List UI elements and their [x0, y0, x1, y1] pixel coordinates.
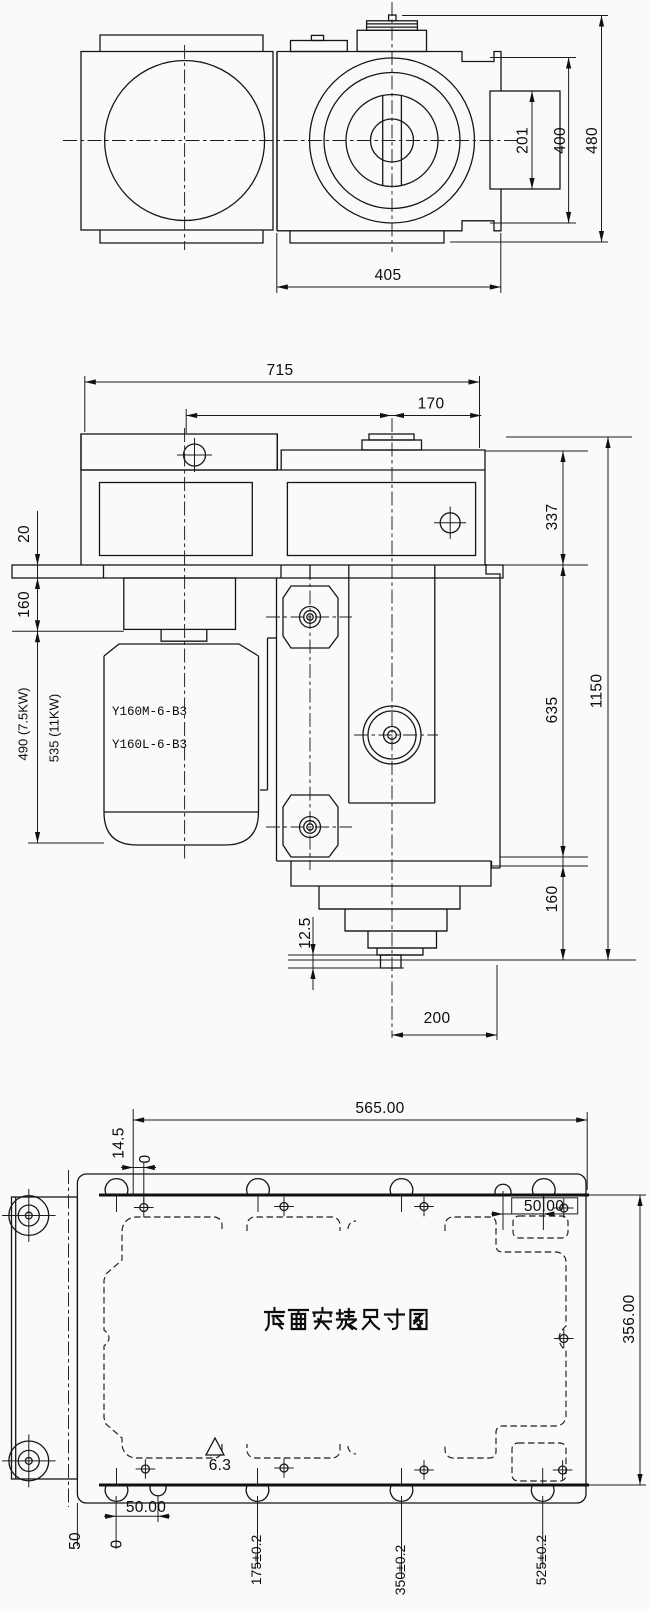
svg-text:0: 0	[109, 1539, 126, 1548]
svg-text:535 (11KW): 535 (11KW)	[47, 694, 62, 762]
svg-text:160: 160	[16, 591, 33, 618]
svg-text:14.5: 14.5	[111, 1127, 128, 1158]
svg-text:175±0.2: 175±0.2	[248, 1535, 264, 1586]
svg-text:400: 400	[552, 127, 569, 154]
svg-text:337: 337	[544, 504, 561, 531]
svg-text:12.5: 12.5	[297, 917, 314, 948]
svg-text:635: 635	[544, 697, 561, 724]
svg-text:201: 201	[515, 127, 532, 154]
svg-text:490 (7.5KW): 490 (7.5KW)	[16, 688, 31, 761]
svg-text:50.00: 50.00	[126, 1499, 166, 1516]
svg-text:480: 480	[584, 127, 601, 154]
svg-text:50: 50	[67, 1532, 84, 1550]
svg-text:200: 200	[424, 1010, 451, 1027]
svg-text:525±0.2: 525±0.2	[533, 1535, 549, 1586]
svg-text:170: 170	[418, 396, 445, 413]
svg-text:565.00: 565.00	[355, 1100, 404, 1117]
svg-text:1150: 1150	[589, 674, 606, 709]
svg-text:160: 160	[544, 886, 561, 913]
svg-text:405: 405	[375, 267, 402, 284]
svg-text:356.00: 356.00	[621, 1294, 638, 1343]
svg-text:6.3: 6.3	[209, 1457, 231, 1474]
svg-text:20: 20	[16, 525, 33, 543]
svg-text:50.00: 50.00	[524, 1198, 564, 1215]
svg-text:Y160M-6-B3: Y160M-6-B3	[112, 705, 187, 719]
svg-text:Y160L-6-B3: Y160L-6-B3	[112, 738, 187, 752]
svg-text:0: 0	[137, 1154, 154, 1163]
svg-text:350±0.2: 350±0.2	[392, 1545, 408, 1596]
svg-text:715: 715	[267, 362, 294, 379]
